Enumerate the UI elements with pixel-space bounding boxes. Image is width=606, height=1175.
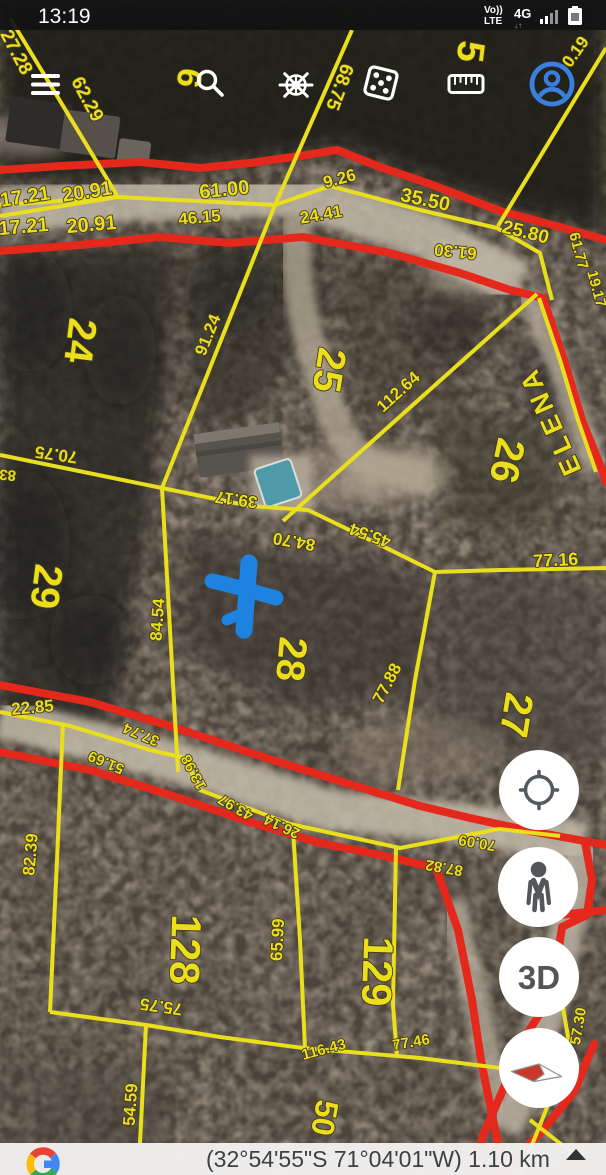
svg-text:83.: 83. xyxy=(0,465,17,484)
svg-text:13:19: 13:19 xyxy=(38,5,91,28)
svg-text:22.85: 22.85 xyxy=(11,696,55,719)
svg-text:29: 29 xyxy=(21,562,70,612)
svg-text:17.21: 17.21 xyxy=(0,214,49,240)
svg-text:65.99: 65.99 xyxy=(267,918,288,961)
svg-text:84.54: 84.54 xyxy=(147,597,169,641)
svg-text:54.59: 54.59 xyxy=(120,1083,142,1127)
svg-text:129: 129 xyxy=(353,936,402,1008)
svg-text:27: 27 xyxy=(491,690,541,741)
svg-text:28: 28 xyxy=(267,635,315,683)
svg-text:24: 24 xyxy=(55,316,104,366)
svg-text:4G: 4G xyxy=(514,6,531,21)
svg-text:25: 25 xyxy=(304,345,354,396)
svg-text:50: 50 xyxy=(304,1097,346,1138)
svg-text:82.39: 82.39 xyxy=(19,833,42,877)
svg-text:46.15: 46.15 xyxy=(178,206,222,229)
svg-text:LTE: LTE xyxy=(484,16,502,27)
svg-text:↓↑: ↓↑ xyxy=(514,21,522,30)
svg-text:128: 128 xyxy=(161,914,210,986)
svg-text:3D: 3D xyxy=(518,959,560,996)
svg-text:Vo)): Vo)) xyxy=(484,5,503,16)
svg-text:(32°54'55"S 71°04'01"W) 1.10 k: (32°54'55"S 71°04'01"W) 1.10 km xyxy=(206,1146,550,1172)
svg-text:77.16: 77.16 xyxy=(533,549,579,571)
svg-text:26: 26 xyxy=(481,434,533,487)
svg-text:20.91: 20.91 xyxy=(66,212,118,238)
